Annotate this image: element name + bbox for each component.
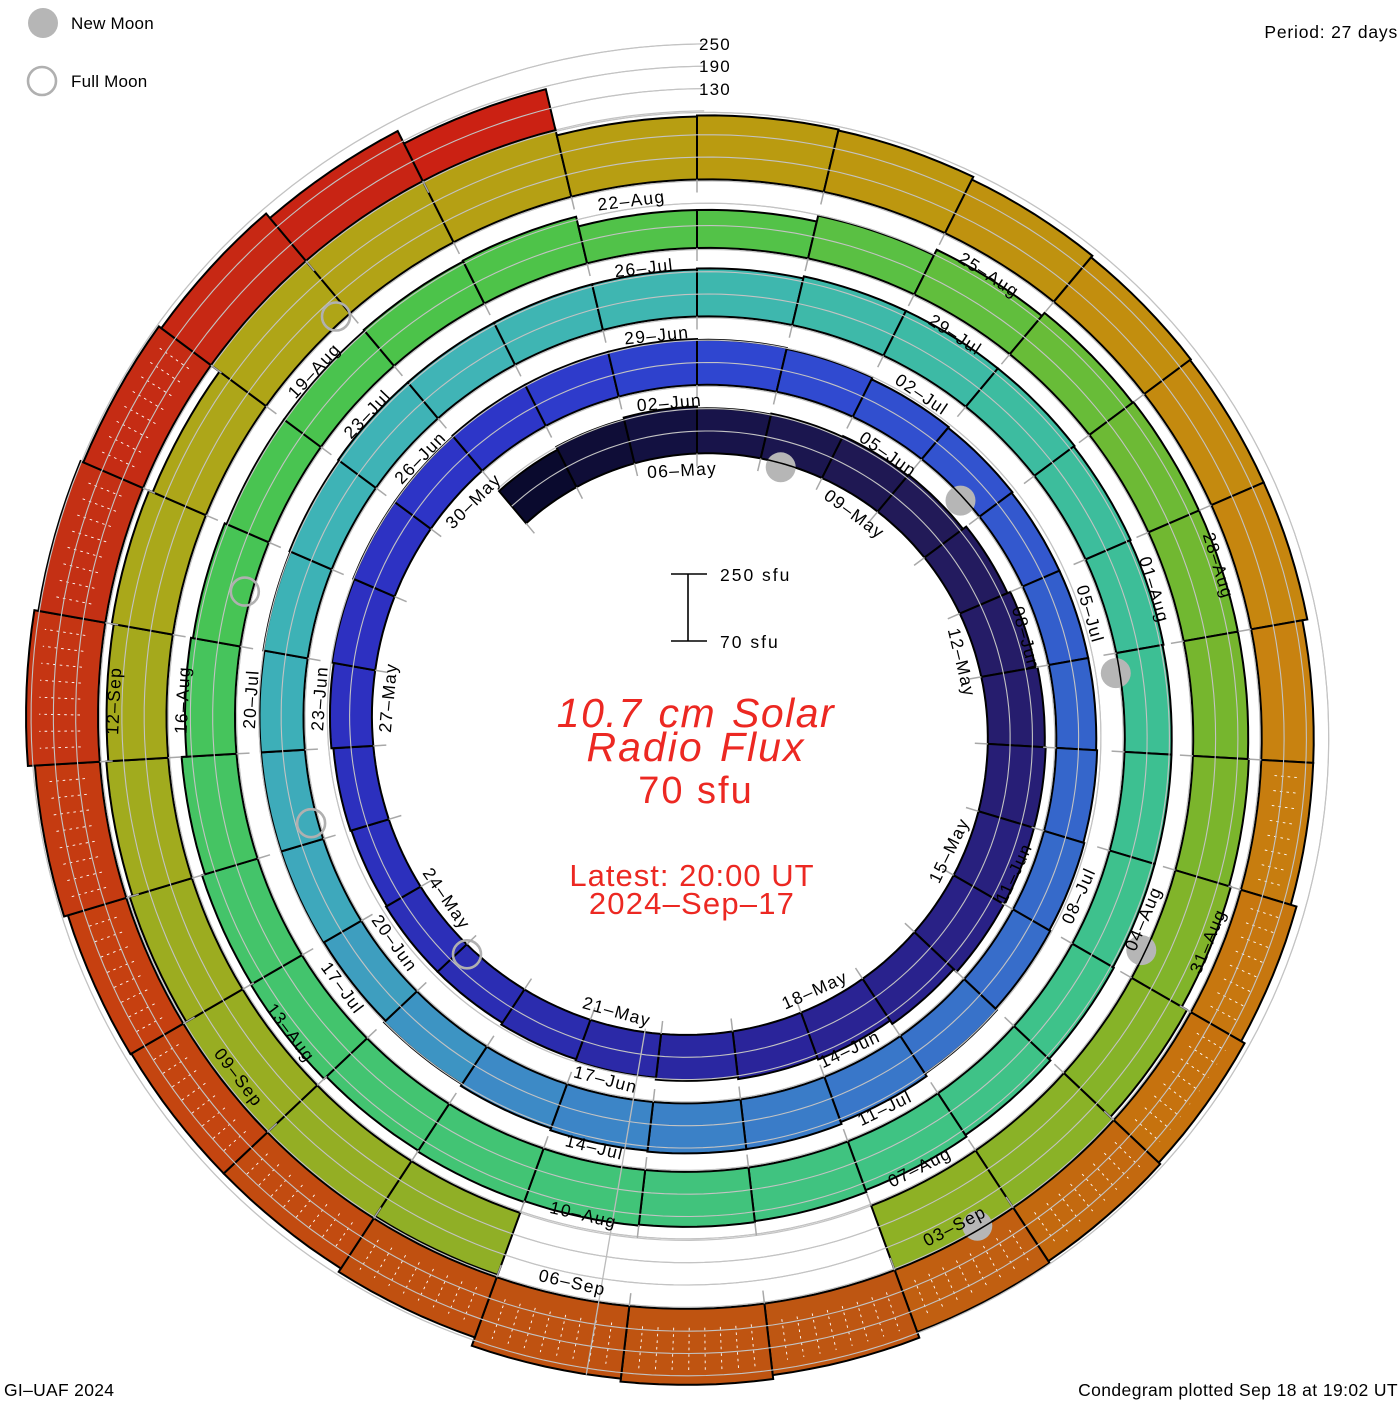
svg-text:190: 190	[699, 57, 731, 76]
svg-text:16–Aug: 16–Aug	[171, 666, 195, 735]
svg-text:250: 250	[699, 35, 731, 54]
svg-text:Full Moon: Full Moon	[71, 72, 147, 91]
svg-text:Period: 27 days: Period: 27 days	[1264, 22, 1398, 42]
svg-text:Radio Flux: Radio Flux	[587, 724, 806, 770]
svg-text:12–Sep: 12–Sep	[102, 666, 125, 735]
svg-text:20–Jul: 20–Jul	[239, 669, 263, 730]
svg-text:GI–UAF 2024: GI–UAF 2024	[4, 1380, 114, 1400]
svg-text:New Moon: New Moon	[71, 14, 154, 33]
svg-text:130: 130	[699, 80, 731, 99]
svg-text:06–May: 06–May	[647, 458, 718, 482]
svg-text:250 sfu: 250 sfu	[720, 565, 791, 585]
svg-text:2024–Sep–17: 2024–Sep–17	[589, 886, 795, 921]
svg-text:70 sfu: 70 sfu	[720, 632, 780, 652]
svg-text:Condegram plotted Sep 18 at 19: Condegram plotted Sep 18 at 19:02 UT	[1078, 1380, 1398, 1400]
svg-text:70 sfu: 70 sfu	[638, 770, 754, 812]
